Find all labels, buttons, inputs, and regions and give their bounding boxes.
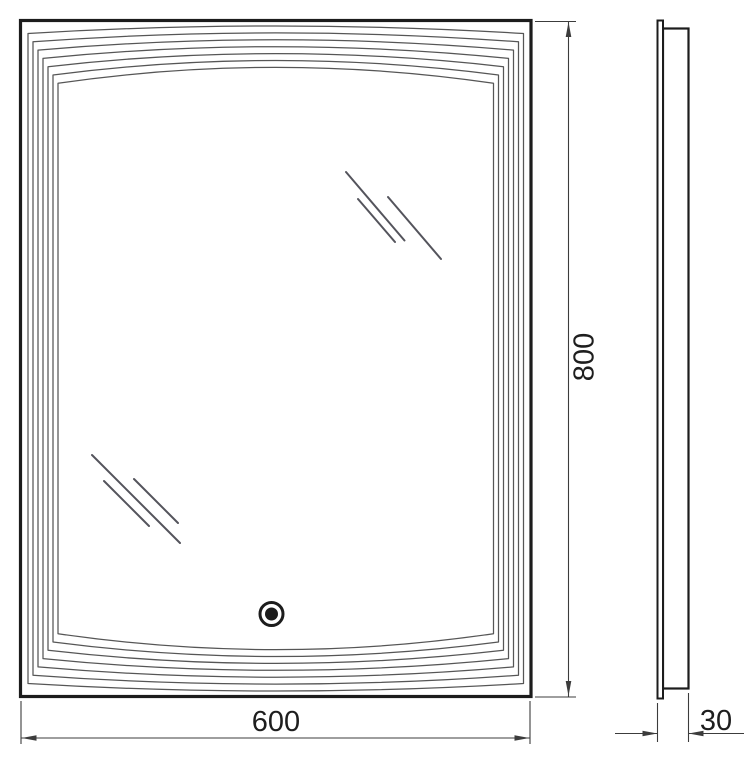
- front-view: [21, 21, 532, 697]
- dimension-width: 600: [21, 701, 530, 744]
- mirror-outer-border: [21, 21, 532, 697]
- touch-sensor-icon: [260, 603, 283, 626]
- mirror-dimension-drawing: 600 800 30: [0, 0, 750, 759]
- glass-shine-lower-icon: [92, 455, 180, 543]
- dimension-height: 800: [535, 22, 601, 698]
- dimension-depth: 30: [615, 693, 744, 742]
- depth-dimension-label: 30: [700, 705, 732, 737]
- side-backing-box: [663, 29, 689, 689]
- glass-shine-upper-icon: [346, 172, 441, 259]
- side-profile-view: [658, 21, 689, 699]
- height-dimension-label: 800: [569, 333, 601, 381]
- side-glass-pane: [658, 21, 664, 699]
- decorative-frame-lines: [28, 26, 524, 691]
- width-dimension-label: 600: [252, 706, 300, 738]
- technical-drawing-canvas: 600 800 30: [0, 0, 750, 759]
